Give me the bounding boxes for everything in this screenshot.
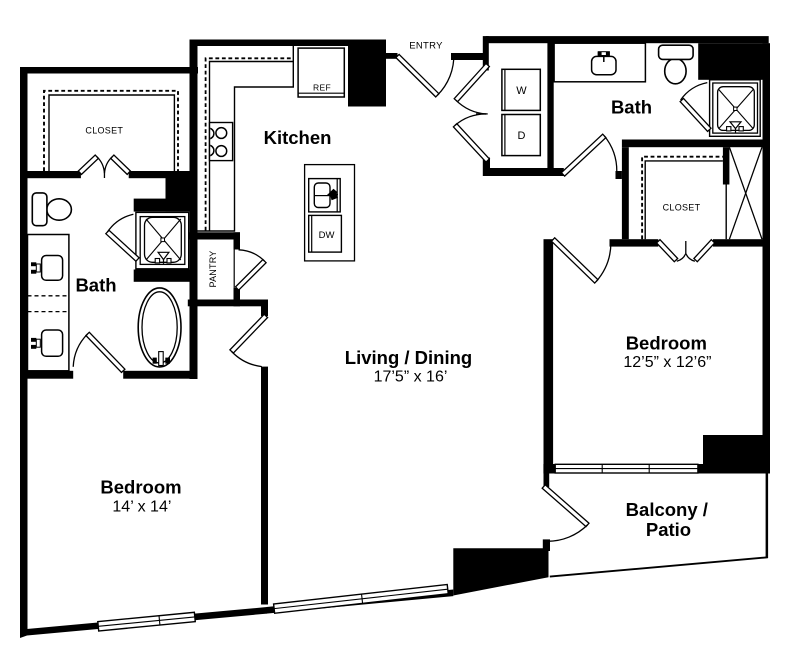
svg-text:Bath: Bath bbox=[75, 275, 116, 296]
svg-text:12’5” x 12’6”: 12’5” x 12’6” bbox=[623, 354, 711, 371]
svg-text:14’ x 14’: 14’ x 14’ bbox=[112, 499, 171, 516]
svg-text:ENTRY: ENTRY bbox=[409, 41, 443, 52]
svg-text:REF: REF bbox=[313, 83, 331, 93]
svg-text:Bedroom: Bedroom bbox=[100, 477, 181, 498]
svg-text:Bath: Bath bbox=[611, 97, 652, 118]
svg-text:Living / Dining: Living / Dining bbox=[345, 347, 472, 368]
svg-text:Kitchen: Kitchen bbox=[264, 127, 332, 148]
svg-text:DW: DW bbox=[319, 230, 335, 241]
svg-text:CLOSET: CLOSET bbox=[85, 126, 123, 136]
svg-text:Patio: Patio bbox=[646, 519, 691, 540]
svg-text:CLOSET: CLOSET bbox=[663, 203, 701, 213]
svg-text:17’5” x 16’: 17’5” x 16’ bbox=[374, 369, 448, 386]
svg-text:Balcony /: Balcony / bbox=[626, 499, 708, 520]
svg-text:D: D bbox=[518, 130, 526, 142]
svg-text:Bedroom: Bedroom bbox=[626, 333, 707, 354]
svg-text:W: W bbox=[516, 85, 527, 97]
svg-text:PANTRY: PANTRY bbox=[208, 251, 218, 288]
